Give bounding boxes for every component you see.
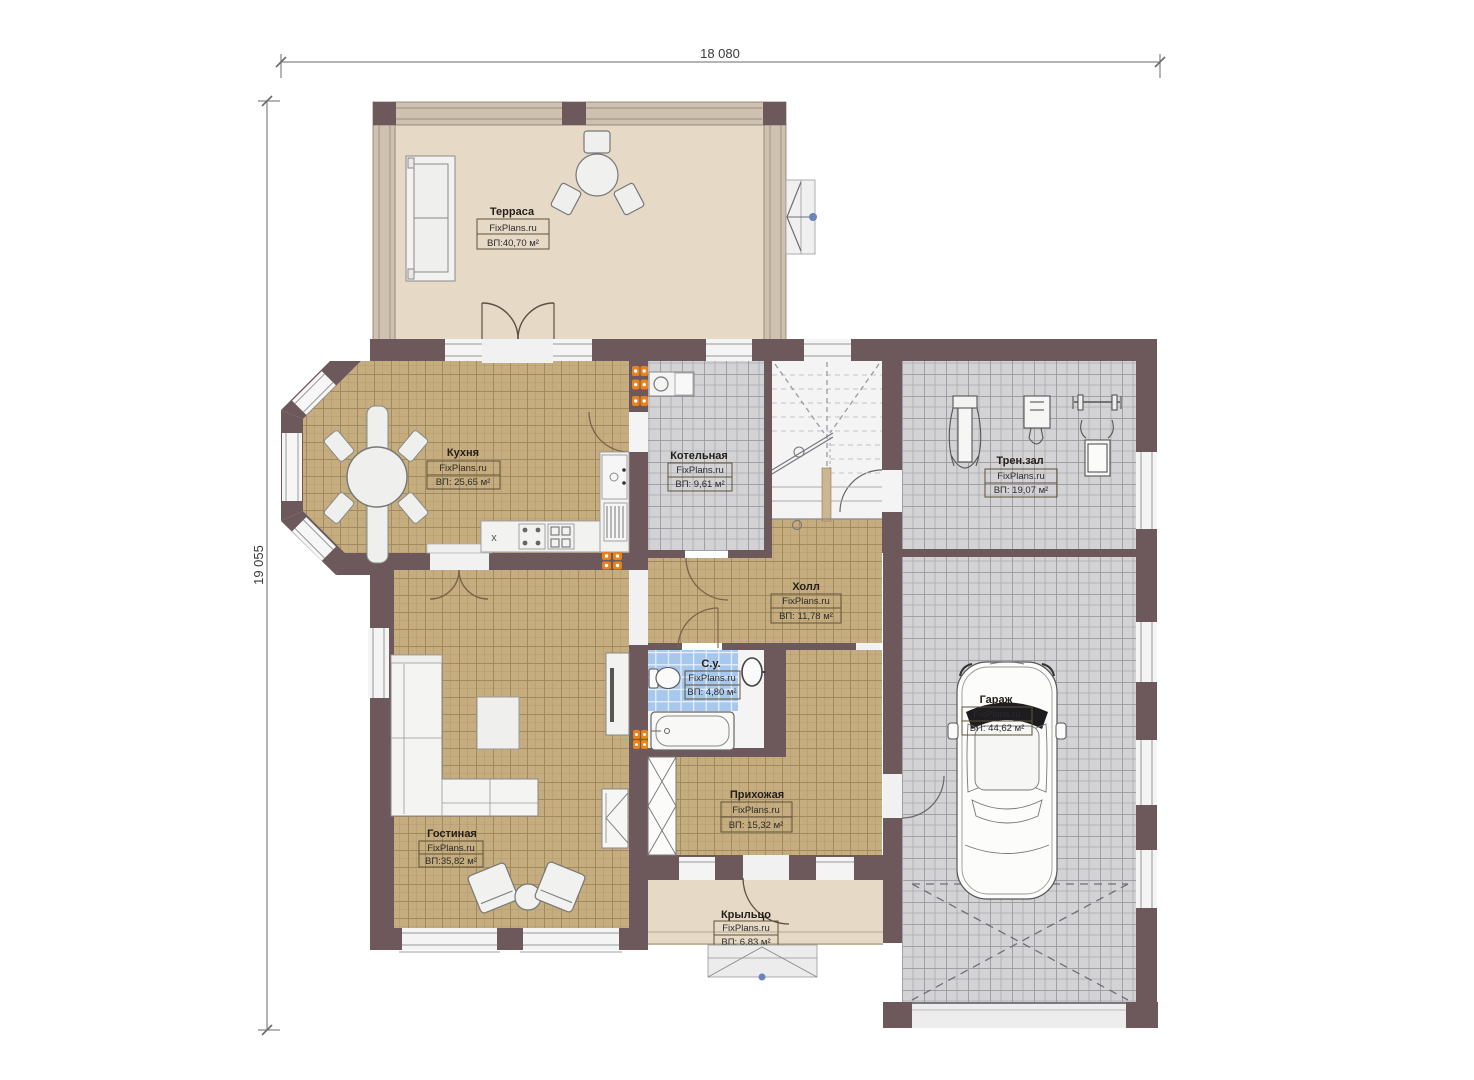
svg-text:FixPlans.ru: FixPlans.ru [676, 465, 724, 476]
svg-text:FixPlans.ru: FixPlans.ru [439, 463, 487, 474]
svg-text:Крыльцо: Крыльцо [721, 909, 771, 921]
svg-text:ВП: 25,65 м²: ВП: 25,65 м² [436, 477, 491, 488]
svg-text:ВП: 15,32 м²: ВП: 15,32 м² [729, 820, 784, 831]
svg-text:ВП: 4,80 м²: ВП: 4,80 м² [687, 687, 736, 698]
svg-text:FixPlans.ru: FixPlans.ru [732, 805, 780, 816]
svg-text:18 080: 18 080 [700, 46, 740, 61]
svg-text:ВП:40,70 м²: ВП:40,70 м² [487, 238, 539, 249]
svg-text:19 055: 19 055 [251, 545, 266, 585]
svg-text:FixPlans.ru: FixPlans.ru [973, 709, 1021, 720]
svg-text:Котельная: Котельная [670, 450, 728, 462]
svg-text:Гостиная: Гостиная [427, 828, 477, 840]
svg-text:Гараж: Гараж [980, 694, 1013, 706]
svg-text:Холл: Холл [792, 581, 820, 593]
svg-text:Терраса: Терраса [490, 206, 535, 218]
svg-text:FixPlans.ru: FixPlans.ru [722, 923, 770, 934]
svg-text:ВП: 19,07 м²: ВП: 19,07 м² [994, 485, 1049, 496]
svg-text:ВП: 11,78 м²: ВП: 11,78 м² [779, 611, 833, 622]
svg-text:Трен.зал: Трен.зал [996, 455, 1043, 467]
svg-text:FixPlans.ru: FixPlans.ru [997, 471, 1045, 482]
svg-text:Кухня: Кухня [447, 447, 479, 459]
svg-text:ВП: 9,61 м²: ВП: 9,61 м² [675, 479, 724, 490]
svg-text:x: x [491, 532, 497, 544]
svg-text:FixPlans.ru: FixPlans.ru [688, 673, 736, 684]
svg-text:ВП:35,82 м²: ВП:35,82 м² [425, 856, 477, 867]
svg-text:Прихожая: Прихожая [730, 789, 784, 801]
svg-text:FixPlans.ru: FixPlans.ru [489, 223, 537, 234]
svg-text:FixPlans.ru: FixPlans.ru [427, 843, 475, 854]
svg-text:ВП: 44,62 м²: ВП: 44,62 м² [970, 723, 1025, 734]
svg-text:FixPlans.ru: FixPlans.ru [782, 596, 830, 607]
svg-text:С.у.: С.у. [701, 658, 720, 670]
